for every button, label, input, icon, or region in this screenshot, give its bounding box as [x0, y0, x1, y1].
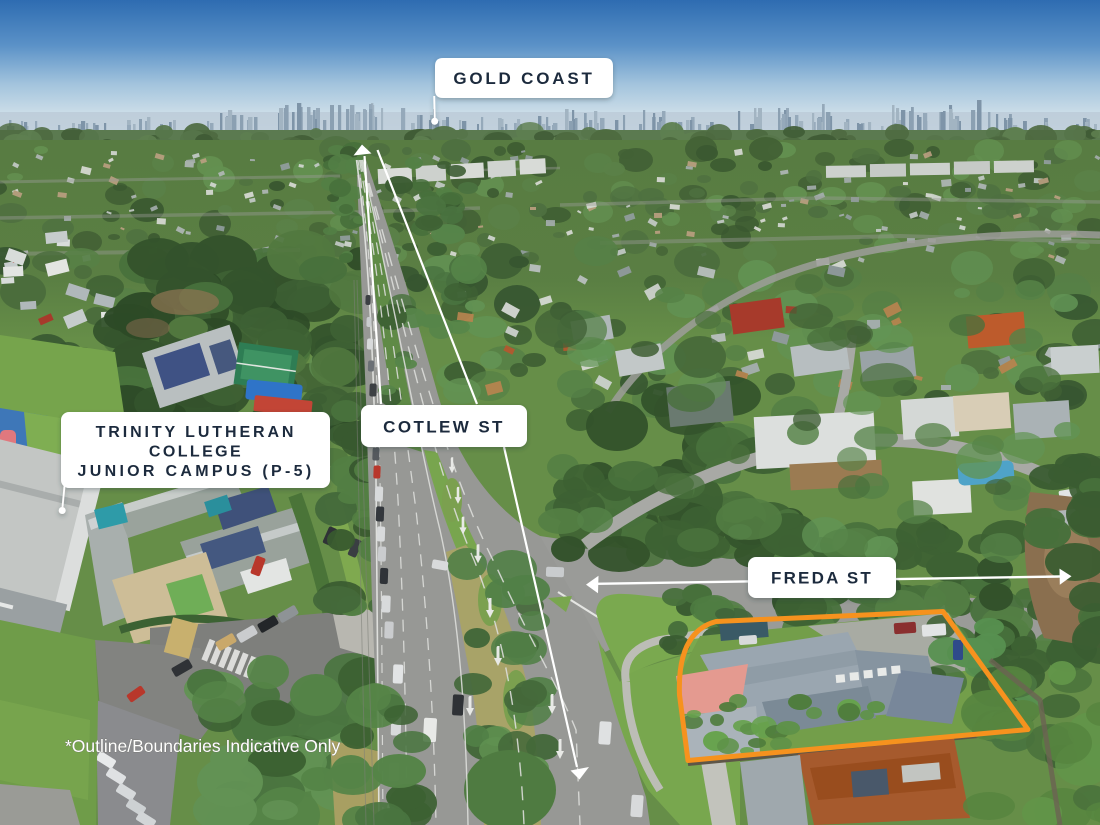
svg-text:GOLD COAST: GOLD COAST: [453, 69, 594, 88]
svg-text:TRINITY LUTHERAN: TRINITY LUTHERAN: [96, 424, 297, 441]
svg-text:FREDA ST: FREDA ST: [771, 569, 873, 588]
svg-text:JUNIOR CAMPUS (P-5): JUNIOR CAMPUS (P-5): [78, 463, 315, 480]
svg-text:*Outline/Boundaries Indicative: *Outline/Boundaries Indicative Only: [65, 736, 341, 756]
svg-text:COLLEGE: COLLEGE: [149, 444, 243, 461]
svg-text:COTLEW ST: COTLEW ST: [383, 418, 505, 437]
